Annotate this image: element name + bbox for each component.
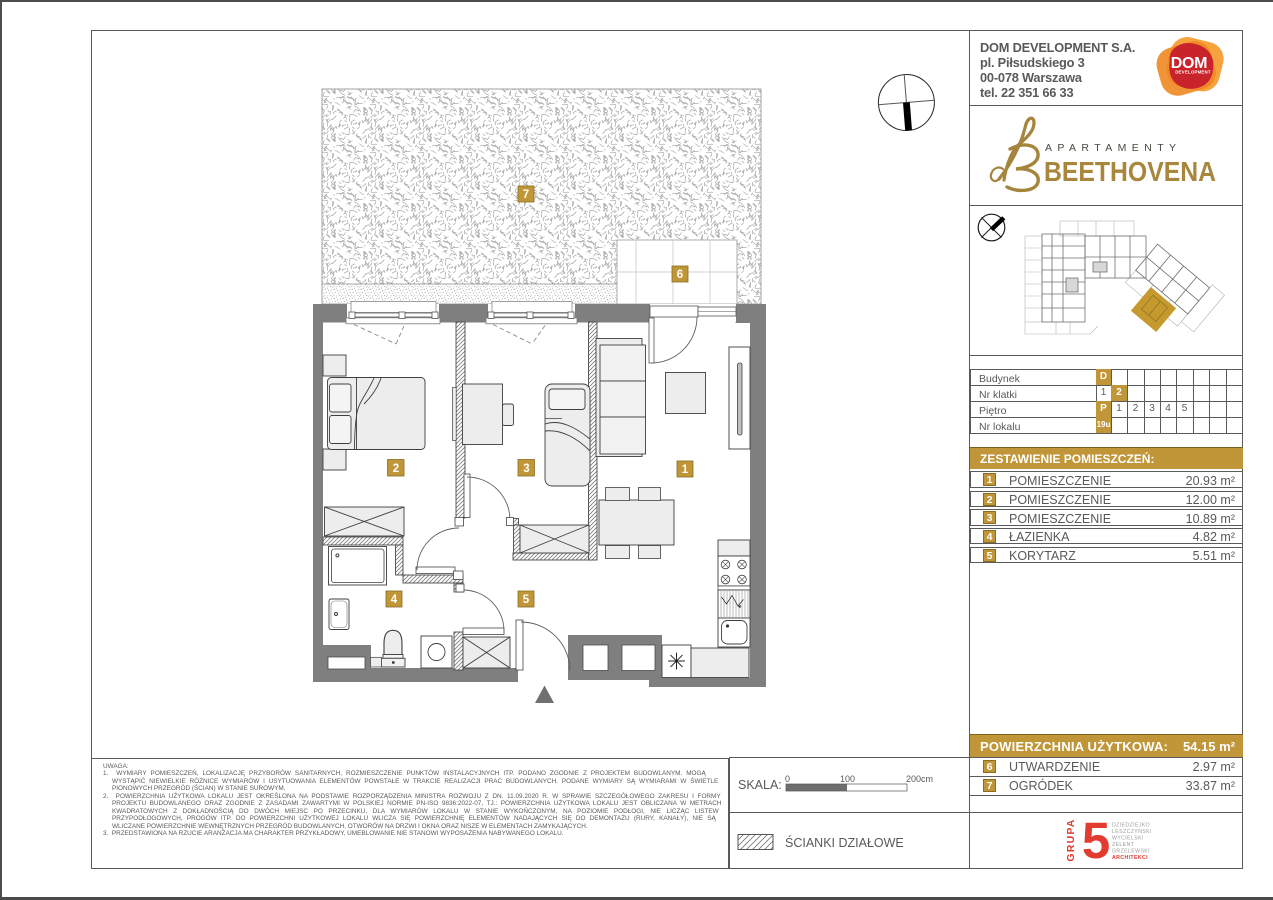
svg-text:100: 100 — [840, 774, 855, 784]
svg-text:7: 7 — [523, 189, 529, 201]
svg-text:DZIEDZIEJKO: DZIEDZIEJKO — [1112, 823, 1150, 829]
svg-text:4: 4 — [391, 594, 398, 606]
svg-text:0: 0 — [785, 774, 790, 784]
svg-text:5: 5 — [523, 594, 530, 606]
svg-text:1: 1 — [682, 464, 689, 476]
svg-text:WYCIELSKI: WYCIELSKI — [1112, 836, 1144, 842]
svg-text:5: 5 — [1082, 812, 1110, 869]
svg-text:200cm: 200cm — [906, 774, 933, 784]
svg-text:6: 6 — [677, 269, 683, 281]
svg-text:3: 3 — [523, 463, 529, 475]
svg-text:2: 2 — [393, 463, 399, 475]
svg-text:GRZELEWSKI: GRZELEWSKI — [1112, 849, 1150, 855]
svg-text:ARCHITEKCI: ARCHITEKCI — [1112, 855, 1148, 861]
svg-text:LESZCZYŃSKI: LESZCZYŃSKI — [1112, 828, 1152, 835]
svg-text:BEETHOVENA: BEETHOVENA — [1044, 156, 1216, 187]
svg-text:GRUPA: GRUPA — [1065, 818, 1077, 861]
svg-text:ZELENT: ZELENT — [1112, 842, 1135, 848]
svg-text:DEVELOPMENT: DEVELOPMENT — [1175, 70, 1211, 75]
